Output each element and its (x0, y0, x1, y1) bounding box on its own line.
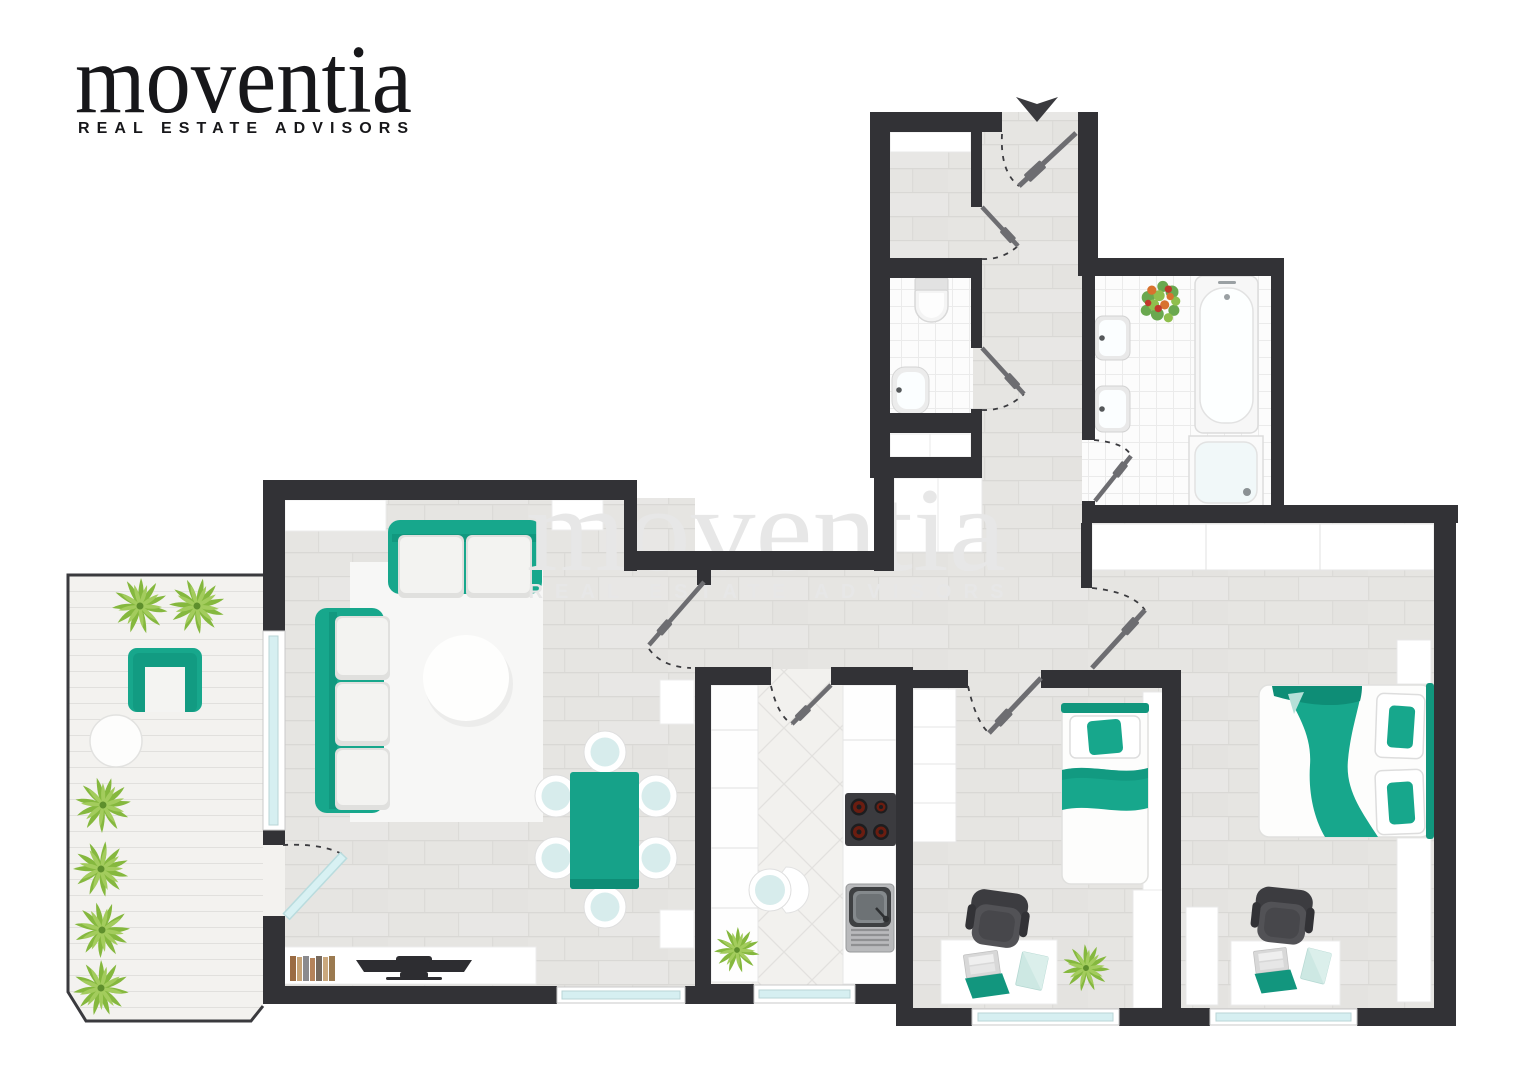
svg-text:moventia: moventia (75, 26, 412, 133)
